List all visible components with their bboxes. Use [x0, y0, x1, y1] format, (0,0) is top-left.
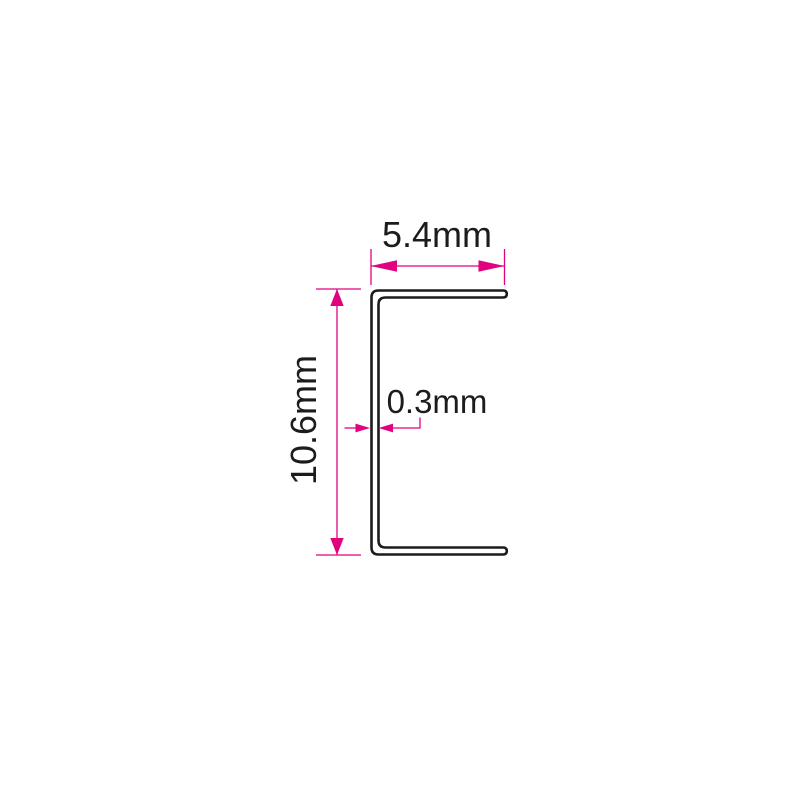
width-dimension-label: 5.4mm [382, 214, 492, 255]
width-arrowhead-right-icon [479, 260, 505, 272]
thickness-dimension: 0.3mm [345, 383, 488, 432]
width-dimension: 5.4mm [371, 214, 505, 285]
thickness-arrowhead-left-icon [356, 424, 371, 433]
height-arrowhead-top-icon [330, 289, 343, 306]
thickness-dimension-label: 0.3mm [387, 383, 488, 420]
technical-drawing: 5.4mm 10.6mm 0.3mm [0, 0, 800, 800]
c-channel-profile [372, 291, 507, 555]
height-dimension-label: 10.6mm [283, 355, 324, 485]
height-arrowhead-bottom-icon [330, 538, 343, 555]
thickness-arrowhead-right-icon [379, 424, 394, 433]
c-channel-outline [372, 291, 507, 555]
drawing-page: 5.4mm 10.6mm 0.3mm [0, 0, 800, 800]
width-arrowhead-left-icon [371, 260, 397, 272]
height-dimension: 10.6mm [283, 289, 361, 555]
